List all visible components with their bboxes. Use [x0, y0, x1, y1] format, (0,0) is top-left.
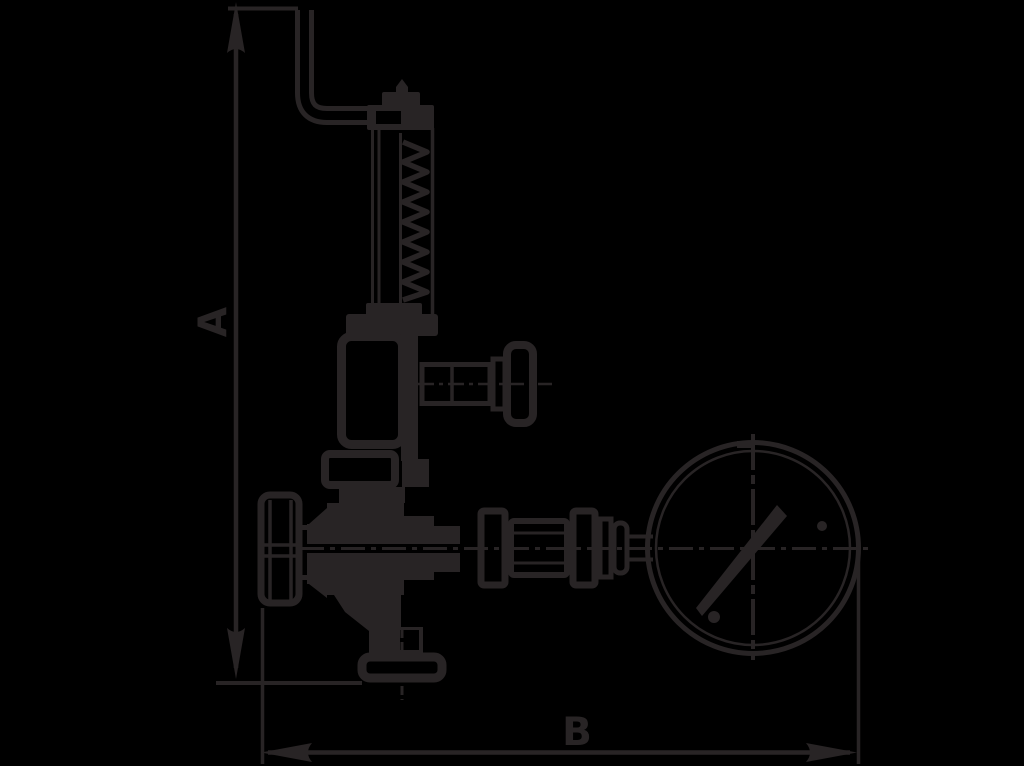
gauge-dot: [708, 611, 720, 623]
left-arrowhead-icon: [261, 743, 312, 762]
right-arrowhead-icon: [806, 743, 857, 762]
dimension-a-label: A: [191, 307, 236, 337]
spring-coil: [403, 142, 427, 300]
spring-bonnet: [373, 128, 433, 315]
gauge-dot: [817, 521, 827, 531]
gauge-needle-icon: [696, 505, 787, 616]
drawing-canvas: A B: [0, 0, 1024, 766]
locknut: [346, 303, 438, 336]
side-port: [418, 345, 552, 423]
upper-housing: [342, 333, 419, 461]
dimension-b-label: B: [562, 710, 592, 755]
bonnet-cap: [367, 79, 434, 130]
down-arrowhead-icon: [227, 628, 245, 679]
body-taper: [334, 595, 401, 631]
test-lever: [305, 10, 384, 116]
valve-technical-drawing: A B: [0, 0, 1024, 766]
mid-flange: [325, 454, 429, 503]
